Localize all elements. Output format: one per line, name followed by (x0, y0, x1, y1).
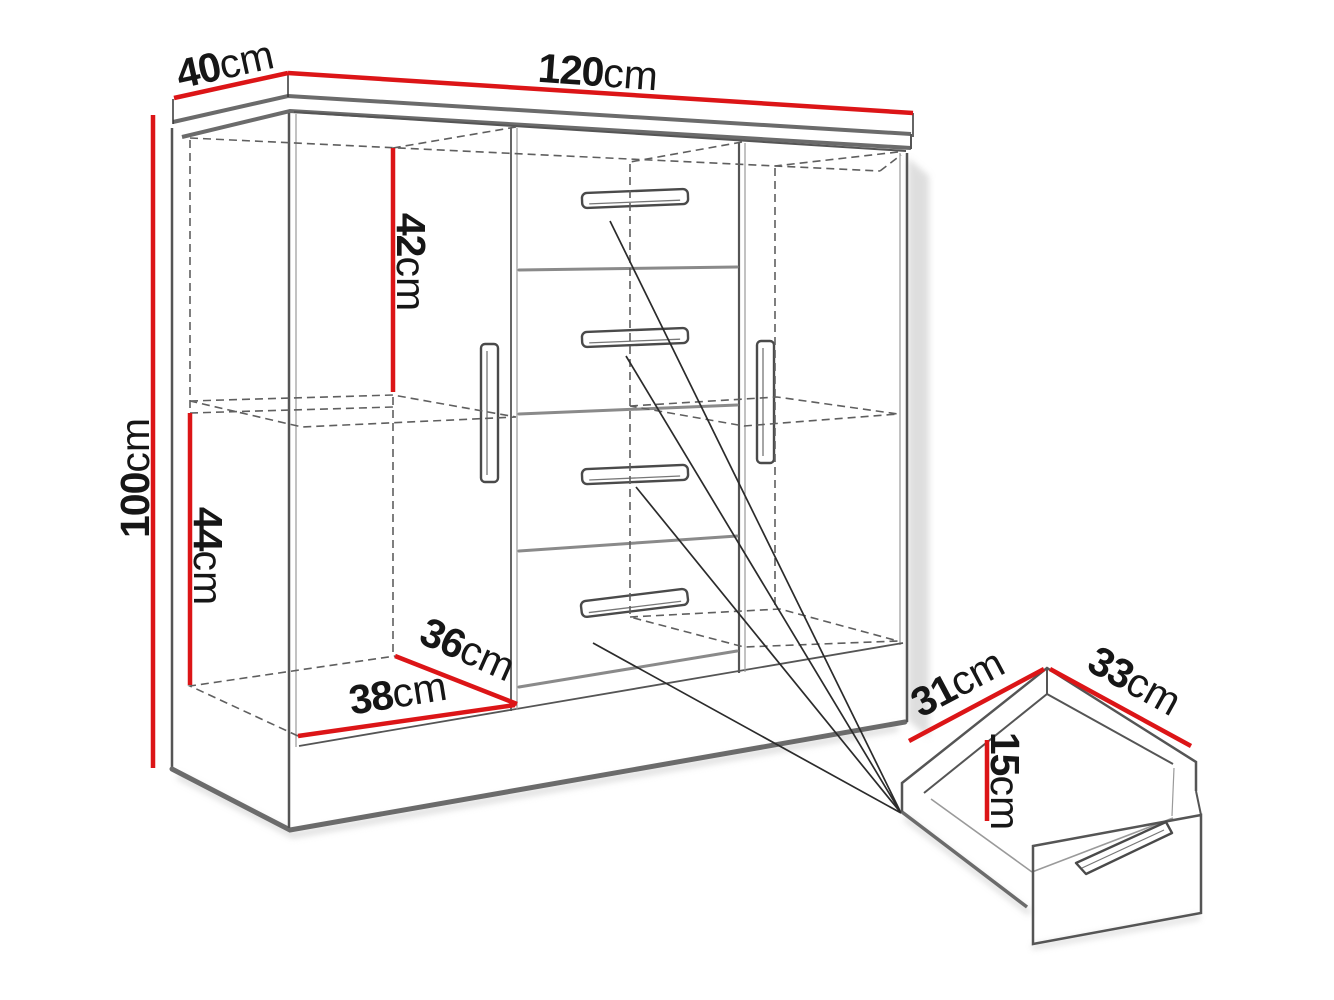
right-floor-outline (630, 609, 898, 647)
drawer-inner-right-corner (1172, 768, 1174, 816)
drawer-shadow-bottom (1032, 917, 1200, 947)
diagram-canvas: 40cm 120cm 100cm 42cm 44cm 36cm 38cm 31c… (0, 0, 1334, 1000)
interior-ceiling-right-join (880, 155, 901, 171)
dim-label-top-length: 120cm (536, 45, 659, 100)
dim-label-lower-section: 44cm (185, 507, 231, 605)
drawer-front-panel (1033, 815, 1201, 944)
drawer-divider-4 (519, 651, 737, 687)
cabinet-body (172, 112, 907, 830)
top-front-edge (182, 111, 911, 148)
plinth-bottom-edge (172, 722, 905, 830)
dim-label-drawer-height: 15cm (982, 732, 1028, 830)
drawer-leader-lines (593, 221, 901, 813)
right-door-handle (757, 341, 774, 463)
door-handles (481, 341, 774, 482)
dim-label-drawer-width: 33cm (1081, 637, 1189, 725)
left-partition-top-edge (393, 127, 516, 148)
drawer-divider-3 (519, 536, 737, 551)
furniture-dimension-diagram: 40cm 120cm 100cm 42cm 44cm 36cm 38cm 31c… (0, 0, 1334, 1000)
drawer-divider-1 (519, 267, 737, 270)
front-top-edge (294, 112, 906, 151)
drawer-1-handle (582, 189, 689, 208)
dim-label-overall-height: 100cm (112, 418, 158, 538)
cabinet-drawing (153, 73, 929, 835)
left-shelf-outline (190, 395, 516, 427)
cabinet-dimension-lines (153, 73, 913, 768)
right-side-shadow (908, 158, 929, 738)
internal-structure-dashed (190, 127, 901, 736)
drawer-4-handle (580, 588, 688, 617)
drawer-shadow-left (905, 818, 1030, 913)
right-wall-top-edge (775, 152, 898, 166)
drawer-3-handle (582, 465, 689, 485)
drawer-right-join (1196, 791, 1201, 815)
leader-line-drawer-4 (593, 643, 901, 813)
dim-label-top-depth: 40cm (172, 31, 278, 97)
drawer-2-handle (582, 328, 689, 347)
dim-label-upper-section: 42cm (388, 213, 434, 311)
right-partition-top-edge (630, 142, 742, 162)
leader-line-drawer-1 (610, 221, 901, 813)
